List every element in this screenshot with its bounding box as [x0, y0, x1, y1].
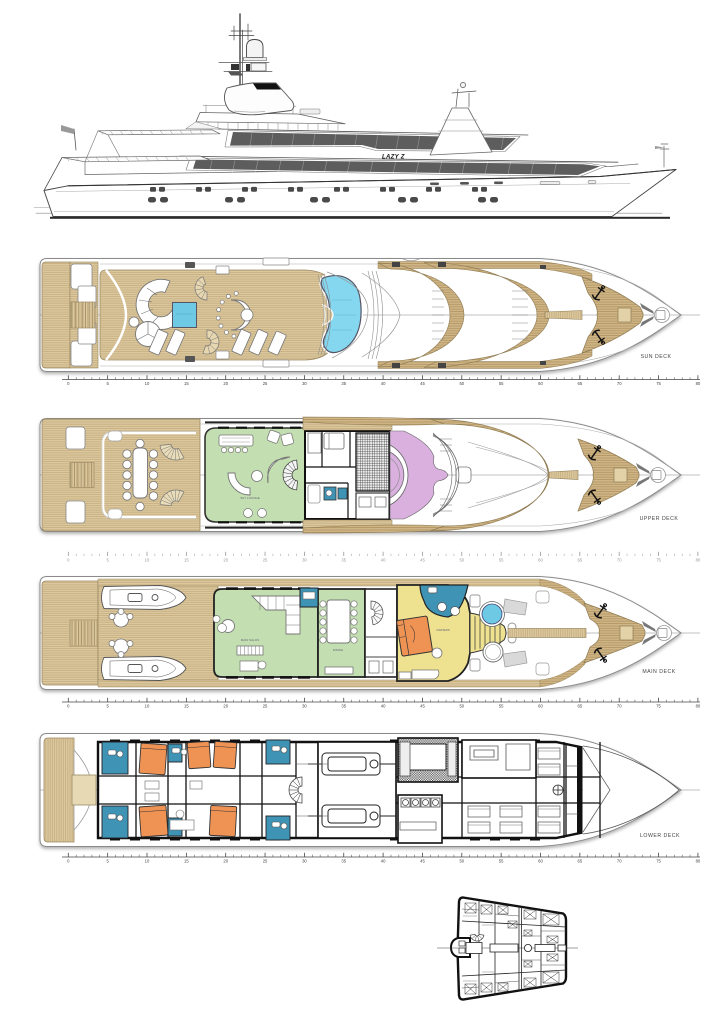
svg-text:65: 65 [578, 558, 583, 563]
svg-text:OWNERS: OWNERS [436, 628, 450, 632]
svg-text:50: 50 [459, 704, 464, 709]
svg-text:35: 35 [341, 381, 346, 386]
svg-text:20: 20 [223, 859, 228, 864]
svg-text:30: 30 [302, 859, 307, 864]
svg-text:70: 70 [617, 859, 622, 864]
svg-text:20: 20 [223, 704, 228, 709]
svg-text:65: 65 [578, 381, 583, 386]
svg-text:60: 60 [538, 558, 543, 563]
svg-text:40: 40 [381, 381, 386, 386]
svg-text:45: 45 [420, 558, 425, 563]
svg-text:45: 45 [420, 381, 425, 386]
svg-text:60: 60 [538, 859, 543, 864]
svg-text:55: 55 [499, 558, 504, 563]
svg-text:80: 80 [696, 558, 701, 563]
svg-text:70: 70 [617, 704, 622, 709]
svg-text:15: 15 [184, 859, 189, 864]
svg-text:60: 60 [538, 704, 543, 709]
svg-text:10: 10 [145, 558, 150, 563]
svg-text:65: 65 [578, 859, 583, 864]
svg-text:80: 80 [696, 704, 701, 709]
svg-text:10: 10 [145, 704, 150, 709]
svg-text:35: 35 [341, 558, 346, 563]
svg-text:DINING: DINING [333, 648, 344, 652]
svg-text:60: 60 [538, 381, 543, 386]
svg-text:50: 50 [459, 859, 464, 864]
svg-text:MAIN DECK: MAIN DECK [642, 669, 675, 675]
svg-text:40: 40 [381, 558, 386, 563]
svg-text:55: 55 [499, 704, 504, 709]
svg-text:35: 35 [341, 704, 346, 709]
svg-text:40: 40 [381, 704, 386, 709]
svg-text:25: 25 [263, 859, 268, 864]
svg-text:50: 50 [459, 381, 464, 386]
svg-text:50: 50 [459, 558, 464, 563]
svg-text:20: 20 [223, 381, 228, 386]
svg-text:10: 10 [145, 381, 150, 386]
svg-text:80: 80 [696, 381, 701, 386]
svg-text:70: 70 [617, 381, 622, 386]
svg-text:55: 55 [499, 859, 504, 864]
svg-text:55: 55 [499, 381, 504, 386]
svg-text:25: 25 [263, 558, 268, 563]
svg-text:75: 75 [656, 859, 661, 864]
svg-text:80: 80 [696, 859, 701, 864]
svg-text:40: 40 [381, 859, 386, 864]
svg-text:30: 30 [302, 558, 307, 563]
svg-text:SUN DECK: SUN DECK [641, 354, 672, 360]
svg-text:15: 15 [184, 381, 189, 386]
svg-text:45: 45 [420, 704, 425, 709]
svg-text:45: 45 [420, 859, 425, 864]
svg-text:25: 25 [263, 381, 268, 386]
svg-text:LOWER DECK: LOWER DECK [640, 833, 680, 839]
svg-text:MAIN SALON: MAIN SALON [241, 638, 260, 642]
svg-text:25: 25 [263, 704, 268, 709]
svg-text:SKY LOUNGE: SKY LOUNGE [240, 496, 259, 500]
svg-text:10: 10 [145, 859, 150, 864]
svg-text:20: 20 [223, 558, 228, 563]
svg-text:75: 75 [656, 558, 661, 563]
svg-text:15: 15 [184, 558, 189, 563]
svg-text:UPPER DECK: UPPER DECK [640, 516, 679, 522]
svg-text:30: 30 [302, 381, 307, 386]
svg-text:75: 75 [656, 381, 661, 386]
svg-text:35: 35 [341, 859, 346, 864]
svg-text:75: 75 [656, 704, 661, 709]
svg-text:30: 30 [302, 704, 307, 709]
svg-text:70: 70 [617, 558, 622, 563]
svg-text:65: 65 [578, 704, 583, 709]
svg-text:15: 15 [184, 704, 189, 709]
